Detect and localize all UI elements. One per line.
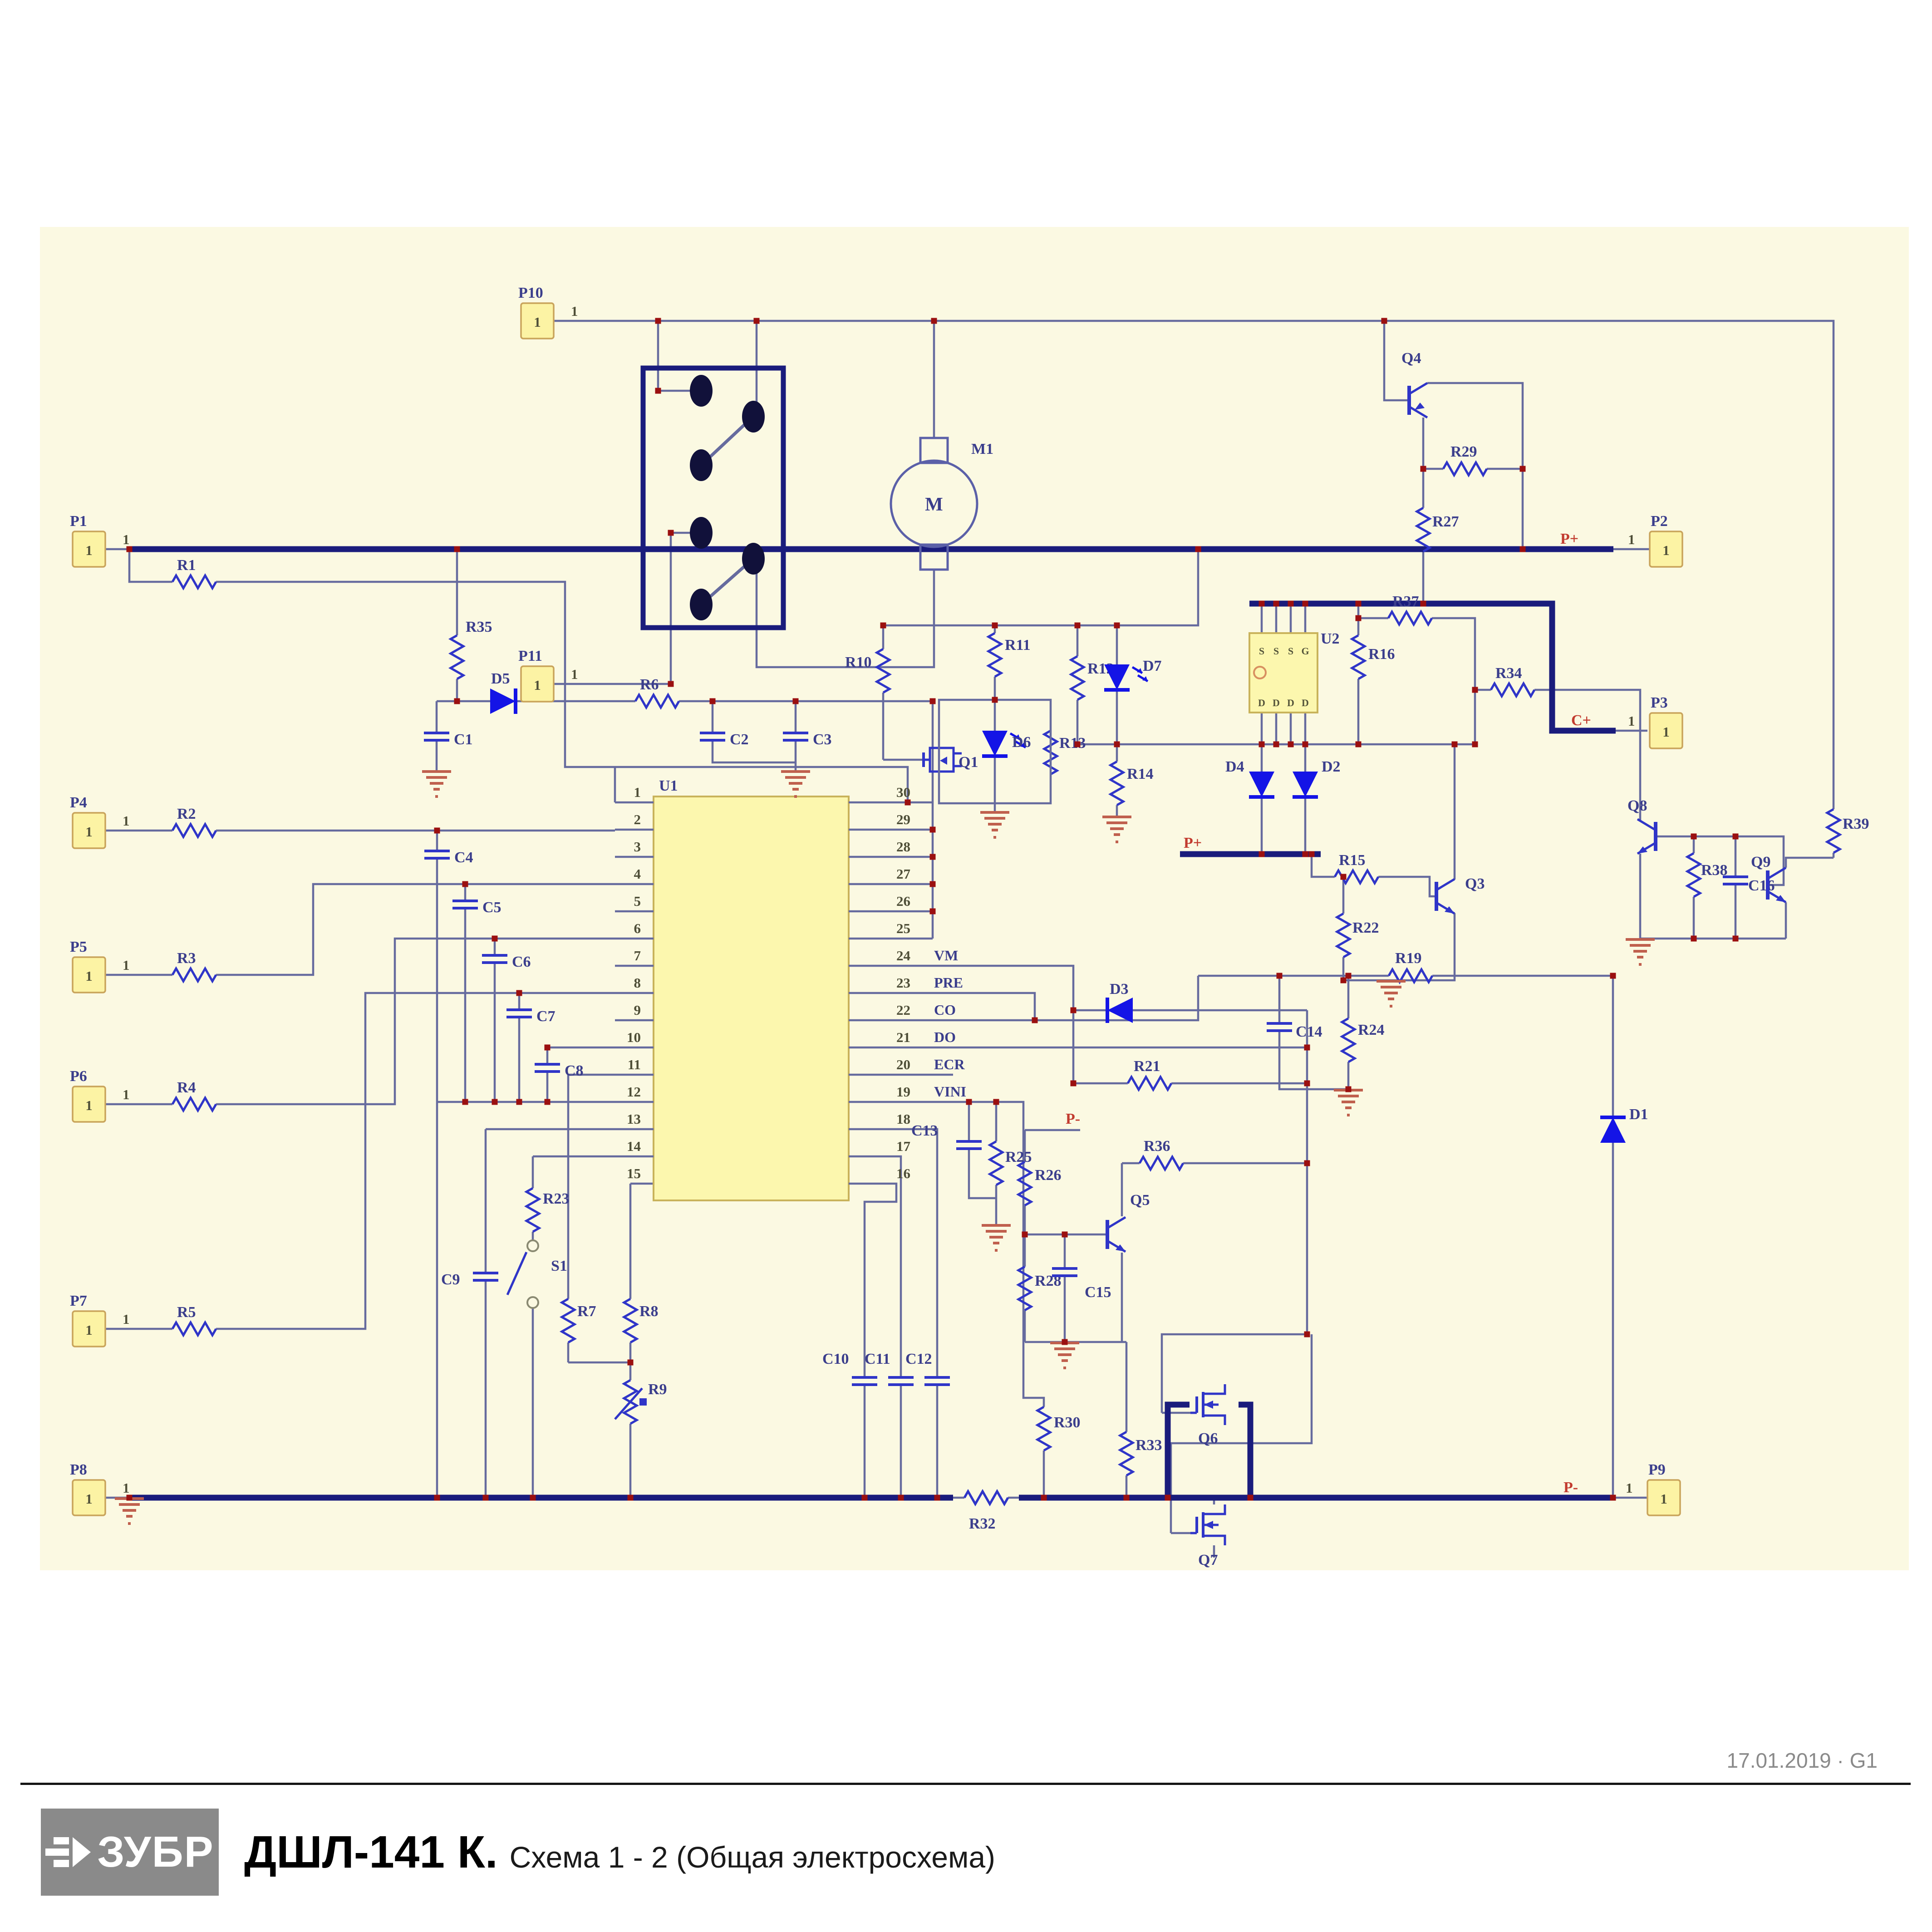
resistor-body <box>1417 508 1430 551</box>
label-D2: D2 <box>1322 758 1341 775</box>
component-Q6 <box>1190 1384 1225 1425</box>
label-30: 30 <box>896 784 910 800</box>
junction-dot <box>1259 742 1265 747</box>
component-R37 <box>1388 612 1432 624</box>
svg-text:1: 1 <box>534 314 541 330</box>
component-C8 <box>535 1064 560 1072</box>
junction-dot <box>1733 936 1739 942</box>
resistor-body <box>1071 656 1084 700</box>
label-P5: P5 <box>70 939 87 955</box>
junction-dot <box>1452 742 1458 747</box>
ground-tip <box>794 795 797 798</box>
resistor-body <box>1018 1162 1031 1205</box>
transistor-arrow-icon <box>1415 403 1425 410</box>
junction-dot <box>930 698 936 704</box>
junction-dot <box>1304 1045 1310 1051</box>
wire <box>1171 1334 1312 1533</box>
ground-tip <box>1063 1367 1066 1369</box>
ground-tip <box>1639 963 1642 966</box>
component-Q5 <box>1107 1217 1126 1252</box>
label-1: 1 <box>1626 1480 1633 1496</box>
resistor-body <box>1128 1077 1171 1090</box>
label-R15: R15 <box>1339 852 1366 869</box>
label-22: 22 <box>896 1002 910 1018</box>
component-R14 <box>1111 762 1123 805</box>
connector-P7: 1 <box>73 1311 105 1347</box>
label-P10: P10 <box>518 285 543 301</box>
label-C6: C6 <box>512 954 531 970</box>
junction-dot <box>1303 742 1308 747</box>
junction-dot <box>1304 1160 1310 1166</box>
switch-contact <box>527 1297 538 1308</box>
connector-P11: 1 <box>521 666 554 702</box>
junction-dot <box>454 546 460 552</box>
component-R1 <box>172 575 216 588</box>
label-1: 1 <box>123 813 130 829</box>
brand-logo: ЗУБР <box>41 1809 219 1896</box>
component-R28 <box>1018 1267 1031 1310</box>
wire <box>553 533 690 684</box>
component-Q1 <box>924 748 962 772</box>
junction-dot <box>1124 1495 1130 1501</box>
label-S: S <box>1273 645 1279 657</box>
component-D1 <box>1600 1117 1626 1143</box>
switch-contact <box>742 543 765 575</box>
transistor-collector <box>1107 1217 1126 1228</box>
label-R37: R37 <box>1392 593 1419 610</box>
svg-text:1: 1 <box>1662 542 1670 558</box>
label-16: 16 <box>896 1165 910 1181</box>
diode-triangle <box>982 731 1008 756</box>
component-D4 <box>1249 772 1274 797</box>
label-P+: P+ <box>1184 835 1202 851</box>
junction-dot <box>655 388 661 394</box>
label-C11: C11 <box>865 1351 890 1367</box>
junction-dot <box>1303 851 1308 857</box>
label-C9: C9 <box>441 1271 460 1288</box>
label-C5: C5 <box>482 899 501 916</box>
component-Q7 <box>1190 1504 1225 1545</box>
component-C9 <box>473 1273 498 1280</box>
component-R35 <box>451 635 463 679</box>
resistor-body <box>1342 1018 1355 1062</box>
junction-dot <box>930 909 936 914</box>
junction-dot <box>1041 1495 1047 1501</box>
component-C14 <box>1267 1023 1292 1031</box>
ic-U1 <box>654 796 849 1200</box>
junction-dot <box>1472 687 1478 693</box>
junction-dot <box>462 1099 468 1105</box>
resistor-body <box>1037 1407 1050 1450</box>
trimmer-tap <box>639 1398 647 1406</box>
component-R38 <box>1687 853 1700 897</box>
component-R39 <box>1827 809 1840 853</box>
junction-dot <box>1277 973 1283 979</box>
fet-arrow-icon <box>1204 1401 1213 1409</box>
label-C7: C7 <box>536 1008 556 1025</box>
fet-arrow-icon <box>1204 1521 1213 1529</box>
label-S1: S1 <box>551 1258 567 1274</box>
label-Q1: Q1 <box>959 754 978 771</box>
resistor-body <box>1827 809 1840 853</box>
resistor-body <box>172 575 216 588</box>
label-G: G <box>1301 645 1309 657</box>
junction-dot <box>483 1495 489 1501</box>
label-U2: U2 <box>1321 630 1340 647</box>
label-C12: C12 <box>905 1351 932 1367</box>
junction-dot <box>1304 1081 1310 1086</box>
component-R21 <box>1128 1077 1171 1090</box>
junction-dot <box>127 1495 133 1501</box>
junction-dot <box>1288 601 1294 607</box>
junction-dot <box>1303 601 1308 607</box>
label-1: 1 <box>1628 531 1635 547</box>
component-R5 <box>172 1322 216 1335</box>
label-C13: C13 <box>911 1122 938 1139</box>
label-R27: R27 <box>1432 513 1459 530</box>
junction-dot <box>1520 466 1526 472</box>
connector-P4: 1 <box>73 813 105 848</box>
diode-triangle <box>1107 998 1133 1023</box>
label-R30: R30 <box>1054 1414 1081 1431</box>
label-S: S <box>1259 645 1264 657</box>
switch-contact <box>690 589 713 620</box>
junction-dot <box>966 1099 972 1105</box>
component-R36 <box>1140 1157 1183 1170</box>
label-27: 27 <box>896 866 910 882</box>
component-D7 <box>1104 664 1148 690</box>
ground-tip <box>435 795 438 798</box>
component-R10 <box>877 649 890 693</box>
resistor-body <box>1443 462 1487 475</box>
label-1: 1 <box>571 666 578 682</box>
component-R2 <box>172 824 216 837</box>
resistor-body <box>988 633 1001 677</box>
label-26: 26 <box>896 893 910 909</box>
component-C1 <box>424 733 449 740</box>
wire <box>887 966 1073 1083</box>
component-R33 <box>1120 1432 1133 1475</box>
svg-text:1: 1 <box>85 1322 93 1338</box>
junction-dot <box>930 827 936 833</box>
ground-tip <box>1390 1005 1392 1008</box>
switch-contact <box>690 449 713 481</box>
label-23: 23 <box>896 975 910 991</box>
label-C1: C1 <box>454 731 473 748</box>
junction-dot <box>1421 601 1426 607</box>
logo-arrow-icon <box>73 1837 91 1867</box>
wire <box>216 993 615 1329</box>
junction-dot <box>993 1099 999 1105</box>
label-P7: P7 <box>70 1293 87 1309</box>
junction-dot <box>1304 1332 1310 1337</box>
label-R25: R25 <box>1005 1149 1032 1165</box>
label-3: 3 <box>634 839 641 855</box>
junction-dot <box>1062 1232 1068 1238</box>
junction-dot <box>930 854 936 860</box>
label-R39: R39 <box>1843 816 1869 832</box>
junction-dot <box>1032 1018 1038 1023</box>
component-C2 <box>700 733 725 740</box>
junction-dot <box>516 1099 522 1105</box>
junction-dot <box>1472 742 1478 747</box>
junction-dot <box>1165 1495 1171 1501</box>
label-1: 1 <box>123 531 130 547</box>
resistor-body <box>990 1141 1003 1185</box>
component-R24 <box>1342 1018 1355 1062</box>
label-M: M <box>925 494 943 515</box>
wire <box>887 1156 901 1377</box>
label-DO: DO <box>934 1029 956 1045</box>
label-R8: R8 <box>639 1303 659 1320</box>
label-D3: D3 <box>1110 981 1129 998</box>
resistor-body <box>1352 635 1365 679</box>
label-R22: R22 <box>1352 919 1379 936</box>
resistor-body <box>1388 612 1432 624</box>
resistor-body <box>172 968 216 981</box>
label-P11: P11 <box>518 648 542 664</box>
junction-dot <box>992 697 998 703</box>
label-R14: R14 <box>1127 766 1154 782</box>
label-19: 19 <box>896 1084 910 1100</box>
ground-tip <box>1116 841 1118 843</box>
component-C4 <box>424 851 450 858</box>
component-C11 <box>888 1377 914 1385</box>
component-R29 <box>1443 462 1487 475</box>
label-U1: U1 <box>659 777 678 794</box>
title-block: ДШЛ-141 К. Схема 1 - 2 (Общая электросхе… <box>244 1826 995 1878</box>
junction-dot <box>1195 546 1201 552</box>
resistor-body <box>451 635 463 679</box>
label-D: D <box>1287 697 1294 708</box>
transistor-collector <box>1637 819 1656 830</box>
component-R22 <box>1337 914 1350 957</box>
junction-dot <box>1520 546 1526 552</box>
junction-dot <box>1356 742 1362 747</box>
switch-contact <box>742 401 765 433</box>
label-P-: P- <box>1563 1479 1578 1496</box>
label-C4: C4 <box>454 849 473 866</box>
junction-dot <box>1309 851 1315 857</box>
junction-dot <box>1022 1232 1028 1238</box>
wire <box>1432 618 1475 744</box>
component-R8 <box>624 1299 637 1342</box>
ground-tip <box>995 1249 998 1252</box>
switch-contact <box>690 517 713 549</box>
label-Q4: Q4 <box>1401 350 1421 367</box>
junction-dot <box>1610 973 1616 979</box>
footer-separator <box>20 1783 1911 1785</box>
label-13: 13 <box>627 1111 641 1127</box>
junction-dot <box>1341 978 1347 983</box>
component-C5 <box>452 901 478 908</box>
resistor-body <box>1687 853 1700 897</box>
junction-dot <box>898 1495 904 1501</box>
junction-dot <box>905 800 911 806</box>
label-R1: R1 <box>177 557 196 574</box>
label-R10: R10 <box>845 654 872 671</box>
resistor-body <box>526 1188 539 1232</box>
brand-name: ЗУБР <box>97 1827 214 1877</box>
junction-dot <box>668 530 674 536</box>
label-17: 17 <box>896 1138 910 1154</box>
label-PRE: PRE <box>934 974 963 991</box>
diode-triangle <box>1293 772 1318 797</box>
junction-dot <box>434 828 440 834</box>
component-R6 <box>635 695 679 708</box>
wire <box>713 740 796 762</box>
label-D4: D4 <box>1225 758 1244 775</box>
component-R16 <box>1352 635 1365 679</box>
switch-contact <box>690 375 713 407</box>
junction-dot <box>1259 601 1265 607</box>
label-CO: CO <box>934 1002 956 1018</box>
label-R32: R32 <box>969 1515 996 1532</box>
document-subtitle: Схема 1 - 2 (Общая электросхема) <box>510 1840 995 1874</box>
label-15: 15 <box>627 1165 641 1181</box>
label-1: 1 <box>634 784 641 800</box>
label-R11: R11 <box>1005 637 1031 654</box>
label-C+: C+ <box>1571 712 1591 729</box>
junction-dot <box>1356 615 1362 621</box>
resistor-body <box>1140 1157 1183 1170</box>
label-18: 18 <box>896 1111 910 1127</box>
label-25: 25 <box>896 920 910 936</box>
label-20: 20 <box>896 1057 910 1072</box>
svg-text:1: 1 <box>85 968 93 984</box>
component-S1 <box>507 1240 538 1308</box>
resistor-body <box>172 824 216 837</box>
svg-text:1: 1 <box>85 824 93 840</box>
label-D7: D7 <box>1143 658 1162 674</box>
junction-dot <box>1356 601 1362 607</box>
label-29: 29 <box>896 811 910 827</box>
label-R2: R2 <box>177 806 196 822</box>
component-R23 <box>526 1188 539 1232</box>
label-S: S <box>1288 645 1293 657</box>
label-R23: R23 <box>543 1190 570 1207</box>
junction-dot <box>545 1045 551 1051</box>
label-1: 1 <box>123 1086 130 1102</box>
connector-P5: 1 <box>73 957 105 993</box>
junction-dot <box>545 1099 551 1105</box>
revision-date: 17.01.2019 · G1 <box>1727 1748 1878 1773</box>
component-R25 <box>990 1141 1003 1185</box>
component-D5 <box>490 688 516 714</box>
label-P9: P9 <box>1648 1461 1666 1478</box>
label-2: 2 <box>634 811 641 827</box>
component-C7 <box>506 1010 532 1017</box>
ground-tip <box>993 836 996 839</box>
label-R13: R13 <box>1059 735 1086 752</box>
logo-stripes-icon <box>45 1837 69 1867</box>
label-Q5: Q5 <box>1130 1192 1150 1209</box>
junction-dot <box>931 318 937 324</box>
label-C14: C14 <box>1296 1023 1322 1040</box>
connector-P1: 1 <box>73 531 105 567</box>
label-P+: P+ <box>1560 531 1578 547</box>
component-R7 <box>562 1299 575 1342</box>
component-R34 <box>1491 683 1534 696</box>
label-8: 8 <box>634 975 641 991</box>
resistor-body <box>172 1098 216 1111</box>
ground-tip <box>128 1522 131 1525</box>
label-C15: C15 <box>1085 1284 1111 1301</box>
junction-dot <box>1071 1081 1077 1086</box>
resistor-body <box>172 1322 216 1335</box>
label-R3: R3 <box>177 950 196 967</box>
component-C3 <box>783 733 808 740</box>
power-rail <box>1239 1405 1250 1498</box>
label-P4: P4 <box>70 794 87 811</box>
junction-dot <box>880 623 886 629</box>
junction-dot <box>1346 1086 1352 1092</box>
junction-dot <box>454 698 460 704</box>
resistor-body <box>1491 683 1534 696</box>
label-C16: C16 <box>1748 877 1775 894</box>
svg-text:1: 1 <box>1662 724 1670 740</box>
label-Q6: Q6 <box>1198 1430 1218 1447</box>
resistor-body <box>1120 1432 1133 1475</box>
label-C2: C2 <box>730 731 749 748</box>
wire <box>658 321 690 391</box>
label-4: 4 <box>634 866 641 882</box>
svg-text:1: 1 <box>85 1097 93 1113</box>
component-R27 <box>1417 508 1430 551</box>
label-5: 5 <box>634 893 641 909</box>
label-P2: P2 <box>1651 513 1668 530</box>
component-C6 <box>482 955 507 963</box>
q1-arrow-icon <box>940 757 947 765</box>
label-P6: P6 <box>70 1068 87 1085</box>
label-6: 6 <box>634 920 641 936</box>
label-R24: R24 <box>1358 1022 1385 1038</box>
label-R34: R34 <box>1495 665 1522 682</box>
schematic-drawing: MM1U112345678910111213141530292827262524… <box>0 0 1932 1932</box>
junction-dot <box>1381 318 1387 324</box>
label-10: 10 <box>627 1029 641 1045</box>
label-VINI: VINI <box>934 1083 966 1100</box>
junction-dot <box>793 698 799 704</box>
label-R16: R16 <box>1368 646 1395 663</box>
label-9: 9 <box>634 1002 641 1018</box>
svg-text:1: 1 <box>85 542 93 558</box>
transistor-collector <box>1436 879 1455 890</box>
junction-dot <box>930 881 936 887</box>
junction-dot <box>710 698 716 704</box>
label-1: 1 <box>123 1480 130 1496</box>
resistor-body <box>624 1299 637 1342</box>
resistor-body <box>562 1299 575 1342</box>
component-C15 <box>1052 1268 1077 1276</box>
label-1: 1 <box>571 303 578 319</box>
component-Q4 <box>1409 383 1427 418</box>
svg-text:1: 1 <box>85 1491 93 1507</box>
component-D2 <box>1293 772 1318 797</box>
component-R9 <box>615 1380 647 1424</box>
junction-dot <box>462 881 468 887</box>
diode-triangle <box>1104 664 1130 690</box>
label-C10: C10 <box>822 1351 849 1367</box>
label-M1: M1 <box>971 441 993 457</box>
diode-triangle <box>490 688 516 714</box>
label-D1: D1 <box>1629 1106 1648 1123</box>
wire <box>1378 877 1436 896</box>
label-D5: D5 <box>491 670 510 687</box>
junction-dot <box>628 1495 634 1501</box>
label-R19: R19 <box>1395 950 1422 967</box>
label-D: D <box>1302 697 1309 708</box>
